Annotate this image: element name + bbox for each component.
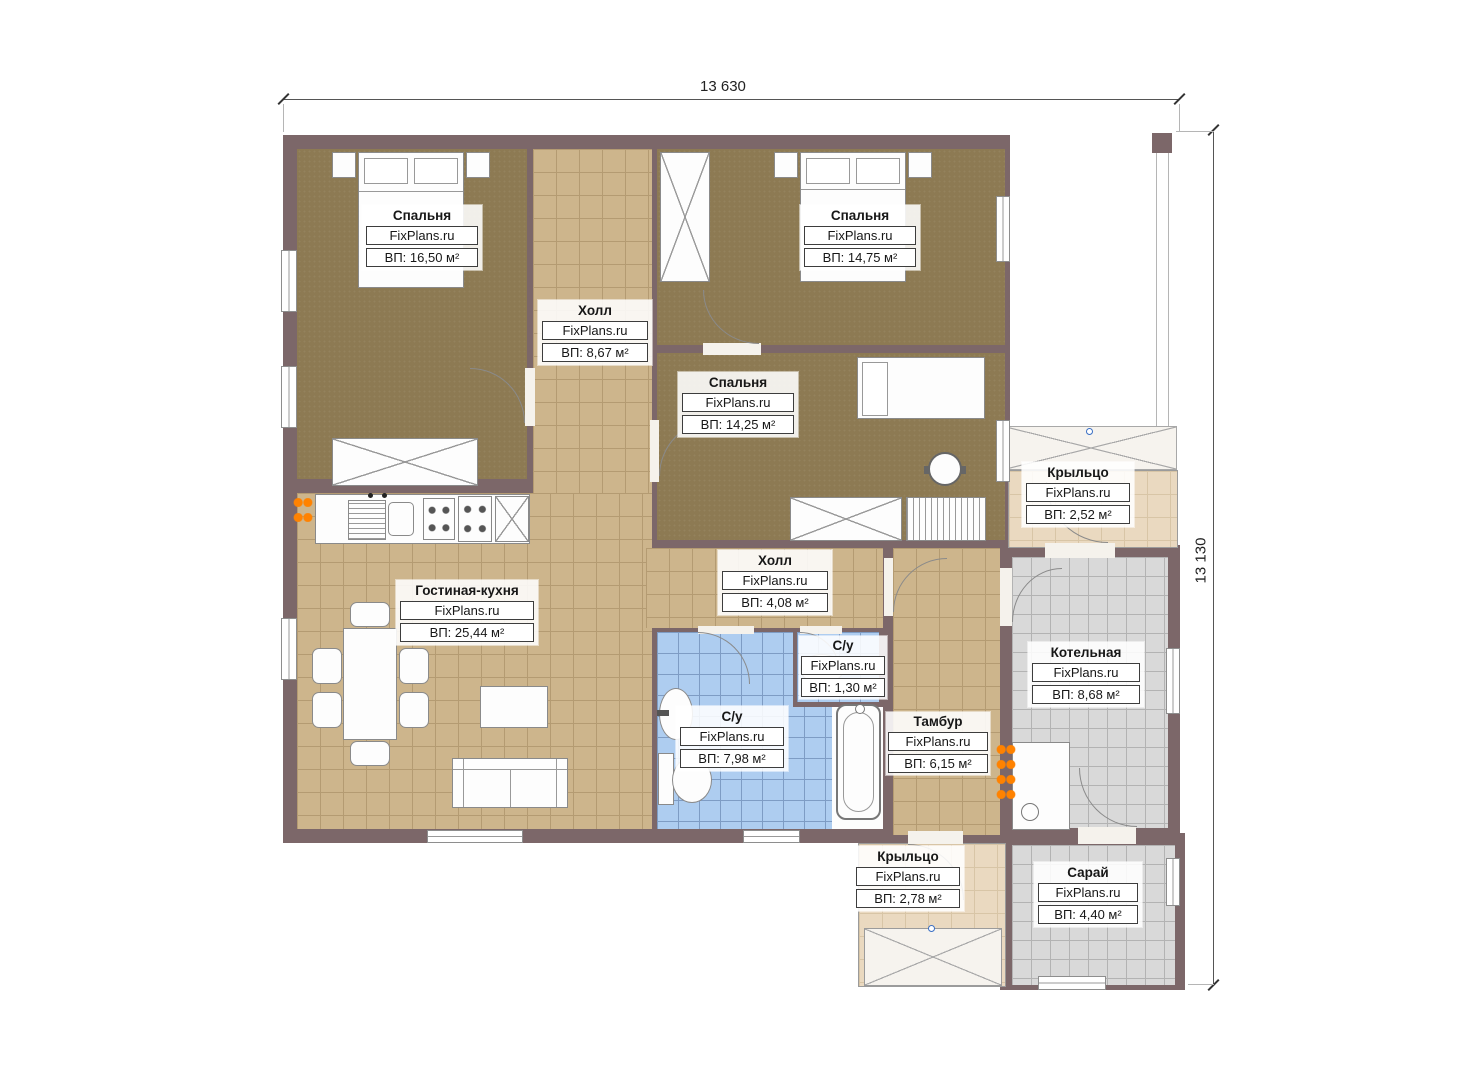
room-name: С/у [680,709,784,724]
radiator [292,498,314,522]
bathtub-tap [855,704,865,714]
bathtub-inner [843,712,874,812]
handle [960,466,966,474]
door-bedroom3 [650,420,659,482]
room-area: ВП: 4,08 м² [722,593,828,612]
coffee-table [480,686,548,728]
extension-line [283,104,284,132]
chair [312,648,342,684]
pillow [414,158,458,184]
window-boiler-right [1166,648,1180,714]
room-area: ВП: 8,68 м² [1032,685,1140,704]
watermark: FixPlans.ru [682,393,794,412]
room-label-bedroom-2: Спальня FixPlans.ru ВП: 14,75 м² [800,205,920,270]
window-bedroom1-left-1 [281,250,297,312]
watermark: FixPlans.ru [804,226,916,245]
watermark: FixPlans.ru [856,867,960,886]
kitchen-drainboard [348,500,386,540]
window-bedroom2-right [996,196,1010,262]
dresser [906,497,986,541]
room-label-shed: Сарай FixPlans.ru ВП: 4,40 м² [1034,862,1142,927]
wardrobe [332,438,478,486]
stove-burners [458,496,492,542]
watermark: FixPlans.ru [400,601,534,620]
radiator [995,745,1017,799]
sofa-arm [453,759,464,807]
room-name: Крыльцо [1026,465,1130,480]
watermark: FixPlans.ru [542,321,648,340]
bathtub [836,704,881,820]
room-label-wc-large: С/у FixPlans.ru ВП: 7,98 м² [676,706,788,771]
right-dimension-line [1213,130,1214,985]
room-name: Крыльцо [856,849,960,864]
room-label-living-kitchen: Гостиная-кухня FixPlans.ru ВП: 25,44 м² [396,580,538,645]
room-area: ВП: 25,44 м² [400,623,534,642]
room-area: ВП: 2,52 м² [1026,505,1130,524]
room-name: Спальня [682,375,794,390]
single-bed [857,357,985,419]
extension-line [1188,984,1214,985]
watermark: FixPlans.ru [888,732,988,751]
floor-plan-canvas: 13 630 13 130 [0,0,1474,1080]
window-living-left [281,618,297,680]
watermark: FixPlans.ru [680,727,784,746]
sofa [452,758,568,808]
pillow [364,158,408,184]
porch-steps [864,928,1002,986]
door-boiler-shed [1078,827,1136,844]
room-label-hall-upper: Холл FixPlans.ru ВП: 8,67 м² [538,300,652,365]
room-name: Котельная [1032,645,1140,660]
faucet-dot [368,493,373,498]
chair [399,648,429,684]
chimney-line [1156,153,1157,426]
room-label-bedroom-3: Спальня FixPlans.ru ВП: 14,25 м² [678,372,798,437]
door-vestibule-porch [908,831,963,844]
wardrobe [660,152,710,282]
chair [399,692,429,728]
room-area: ВП: 16,50 м² [366,248,478,267]
width-dimension-label: 13 630 [700,78,746,95]
porch-marker-dot [928,925,935,932]
room-label-bedroom-1: Спальня FixPlans.ru ВП: 16,50 м² [362,205,482,270]
nightstand [332,152,356,178]
window-living-bottom [427,830,523,843]
watermark: FixPlans.ru [722,571,828,590]
room-area: ВП: 8,67 м² [542,343,648,362]
chair [350,741,390,766]
extension-line [1179,104,1180,132]
room-name: С/у [801,638,885,653]
chimney-line [1168,153,1169,426]
pillow [856,158,900,184]
pillow [806,158,850,184]
room-name: Тамбур [888,714,988,729]
room-name: Спальня [366,208,478,223]
watermark: FixPlans.ru [1038,883,1138,902]
nightstand [466,152,490,178]
room-label-boiler-room: Котельная FixPlans.ru ВП: 8,68 м² [1028,642,1144,707]
room-name: Сарай [1038,865,1138,880]
room-area: ВП: 4,40 м² [1038,905,1138,924]
door-vestibule [884,558,893,616]
window-bedroom1-left-2 [281,366,297,428]
watermark: FixPlans.ru [1026,483,1130,502]
boiler-dial [1021,803,1039,821]
room-name: Спальня [804,208,916,223]
sink-tap [657,710,669,716]
roof-marker-dot [1086,428,1093,435]
handle [924,466,930,474]
pillow [862,362,888,416]
kitchen-sink [388,502,414,536]
room-name: Холл [722,553,828,568]
room-area: ВП: 14,75 м² [804,248,916,267]
sofa-arm [556,759,567,807]
door-bedroom2 [703,343,761,355]
kitchen-cabinet-x [495,496,529,542]
chair [312,692,342,728]
room-label-vestibule: Тамбур FixPlans.ru ВП: 6,15 м² [886,712,990,775]
room-label-wc-small: С/у FixPlans.ru ВП: 1,30 м² [799,636,887,699]
room-label-porch-bottom: Крыльцо FixPlans.ru ВП: 2,78 м² [852,846,964,911]
top-dimension-line [283,99,1180,100]
room-label-porch-right: Крыльцо FixPlans.ru ВП: 2,52 м² [1022,462,1134,527]
room-name: Гостиная-кухня [400,583,534,598]
nightstand [774,152,798,178]
stool-pot [928,452,962,486]
chair [350,602,390,627]
room-area: ВП: 1,30 м² [801,678,885,697]
watermark: FixPlans.ru [801,656,885,675]
sofa-seam [510,769,511,807]
window-wc-bottom [743,830,800,843]
room-area: ВП: 2,78 м² [856,889,960,908]
dining-table [343,628,397,740]
room-area: ВП: 14,25 м² [682,415,794,434]
window-bedroom3-right [996,420,1010,482]
nightstand [908,152,932,178]
wardrobe [790,497,902,541]
blanket-line [359,191,463,192]
stove-burners [423,498,455,540]
room-area: ВП: 7,98 м² [680,749,784,768]
room-area: ВП: 6,15 м² [888,754,988,773]
room-label-hall-lower: Холл FixPlans.ru ВП: 4,08 м² [718,550,832,615]
faucet-dot [382,493,387,498]
blanket-line [801,189,905,190]
boiler-unit [1012,742,1070,830]
watermark: FixPlans.ru [366,226,478,245]
door-porch-boiler [1045,543,1115,558]
opening-shed-bottom [1038,976,1106,990]
chimney-column [1152,133,1172,153]
door-bedroom1 [525,368,535,426]
extension-line [1176,131,1214,132]
height-dimension-label: 13 130 [1192,538,1209,584]
door-vestibule-boiler [1000,568,1012,626]
room-name: Холл [542,303,648,318]
watermark: FixPlans.ru [1032,663,1140,682]
window-shed-right [1166,858,1180,906]
